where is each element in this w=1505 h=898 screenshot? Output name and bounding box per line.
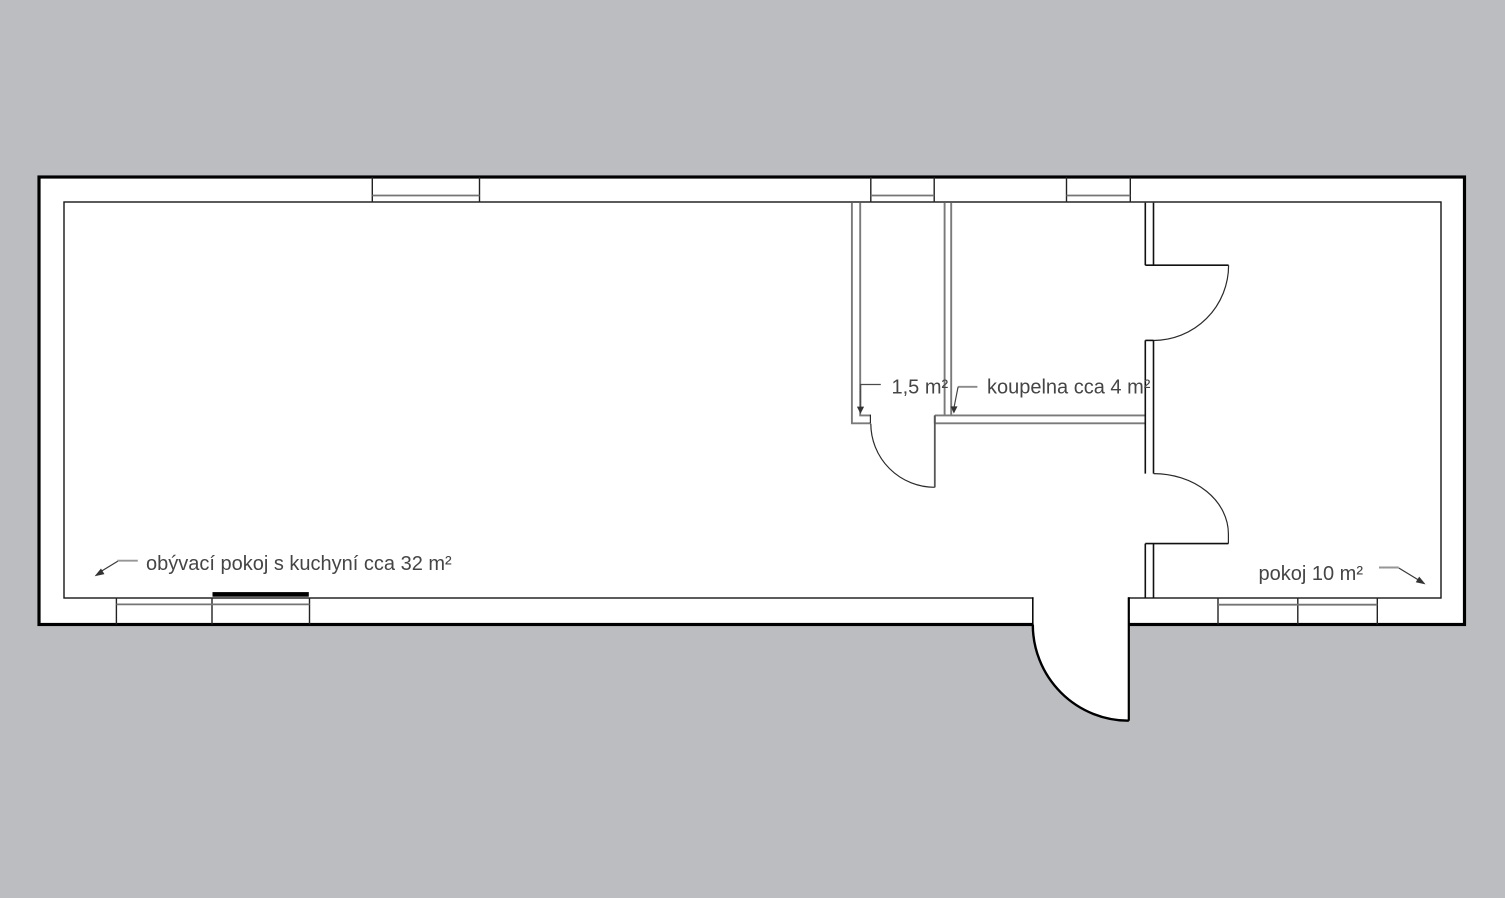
svg-text:pokoj 10 m²: pokoj 10 m² <box>1259 563 1364 585</box>
svg-text:koupelna cca 4 m²: koupelna cca 4 m² <box>987 377 1151 399</box>
svg-text:1,5 m²: 1,5 m² <box>892 377 949 399</box>
svg-text:obývací pokoj s kuchyní cca 32: obývací pokoj s kuchyní cca 32 m² <box>146 553 452 575</box>
